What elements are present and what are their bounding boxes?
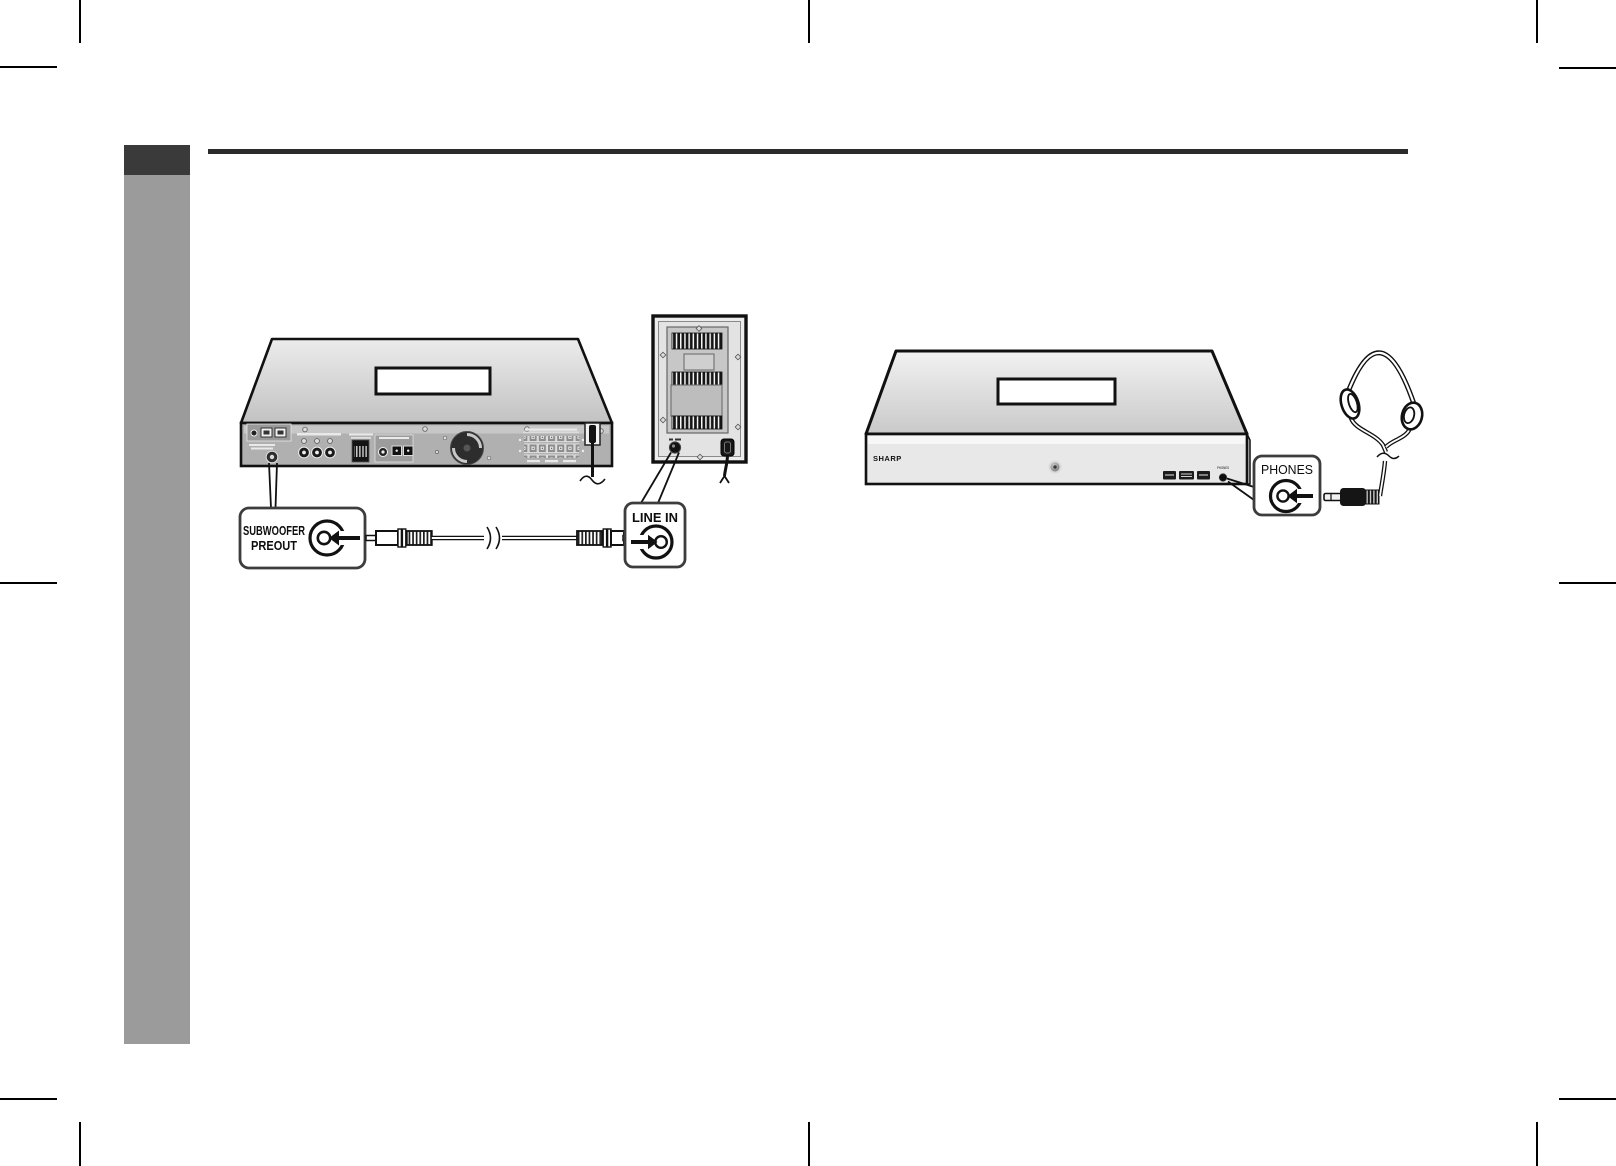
crop-mark-top-center-v xyxy=(808,0,810,43)
chapter-tab-bar-header xyxy=(124,145,190,175)
format-logos xyxy=(1163,471,1210,480)
headphone-plug xyxy=(1324,488,1379,506)
phones-callout: PHONES xyxy=(1254,456,1320,515)
crop-mark-top-left-v xyxy=(79,0,81,43)
crop-mark-bottom-right-h xyxy=(1559,1098,1616,1100)
rca-cable-illustration xyxy=(366,527,631,549)
headphones-connection-diagram: SHARP PHONES xyxy=(835,330,1420,530)
cable-break-mark xyxy=(487,527,500,549)
manual-page: SUBWOOFER PREOUT xyxy=(0,0,1616,1166)
crop-mark-bottom-center-v xyxy=(808,1122,810,1166)
front-panel-bevel xyxy=(868,436,1245,444)
cable-line xyxy=(432,527,577,549)
right-ear-cup xyxy=(1399,400,1425,431)
left-ear-cup xyxy=(1337,387,1362,421)
phones-panel-label: PHONES xyxy=(1217,466,1230,470)
line-in-label: LINE IN xyxy=(632,511,678,525)
crop-mark-bottom-right-v xyxy=(1536,1122,1538,1166)
crop-mark-bottom-left-v xyxy=(79,1122,81,1166)
speaker-vent-top xyxy=(672,333,722,349)
main-unit-display-window xyxy=(376,368,490,394)
antenna-terminals xyxy=(247,424,291,441)
crop-mark-top-right-h xyxy=(1559,67,1616,69)
section-rule xyxy=(208,149,1408,154)
subwoofer-preout-callout: SUBWOOFER PREOUT xyxy=(240,508,365,568)
rca-plug-right xyxy=(577,529,631,547)
speaker-vent-middle xyxy=(672,372,722,385)
main-unit-rear-illustration xyxy=(241,339,612,484)
crop-mark-mid-right-h xyxy=(1559,582,1616,584)
headphone-cord xyxy=(1351,418,1410,496)
system-connector-switch xyxy=(349,434,373,463)
rca-plug-left xyxy=(366,529,432,547)
crop-mark-top-right-v xyxy=(1536,0,1538,43)
chapter-tab-bar xyxy=(124,145,190,1044)
front-knob xyxy=(1049,461,1062,474)
front-unit-display-window xyxy=(998,379,1115,404)
brand-logo: SHARP xyxy=(873,454,902,463)
subwoofer-callout-line2: PREOUT xyxy=(251,538,297,553)
phones-callout-label: PHONES xyxy=(1261,463,1313,477)
control-sockets xyxy=(375,435,413,462)
cord-break-mark xyxy=(1377,453,1399,458)
main-unit-front-illustration: SHARP PHONES xyxy=(866,351,1250,484)
subwoofer-callout-line1: SUBWOOFER xyxy=(243,523,305,538)
speaker-vent-bottom xyxy=(672,416,722,429)
crop-mark-top-left-h xyxy=(0,66,57,68)
line-in-callout: LINE IN xyxy=(625,503,685,567)
crop-mark-mid-left-h xyxy=(0,582,57,584)
subwoofer-connection-diagram: SUBWOOFER PREOUT xyxy=(225,300,765,590)
crop-mark-bottom-left-h xyxy=(0,1098,57,1100)
